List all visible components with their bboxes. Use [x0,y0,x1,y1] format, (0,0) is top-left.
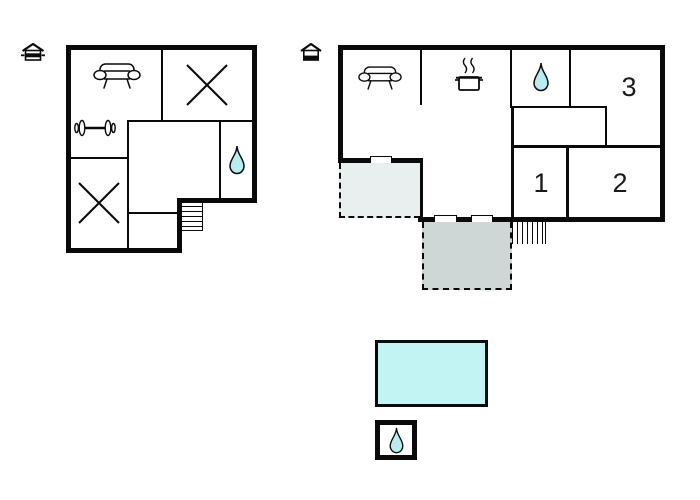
wall [566,148,569,217]
room-3-label: 3 [615,72,643,102]
wall [127,120,252,122]
wall [510,106,607,108]
wall [127,120,129,248]
wall [252,45,257,203]
wall [338,45,665,50]
water-drop-icon [228,145,246,175]
room-x-icon [77,181,121,225]
wall [66,45,71,253]
room-2-label: 2 [606,168,634,198]
wall [71,157,127,159]
wall [129,212,177,214]
water-drop-icon [388,427,405,454]
water-drop-box [375,420,417,460]
wall [510,50,512,106]
wall [605,108,607,145]
wall [511,145,660,148]
water-drop-icon [532,62,550,92]
room-x-icon [185,63,229,107]
house-lower-level-icon [21,43,45,63]
wall [569,50,571,107]
pool [375,340,488,407]
terrace-lower [422,222,512,290]
wall [161,50,163,121]
wall [66,248,182,253]
sofa-icon [358,64,402,92]
wall [219,122,221,198]
wall [338,45,343,163]
cooking-pot-icon [452,57,486,93]
stairs-icon [182,201,203,231]
terrace-upper [339,163,420,218]
stairs-icon [512,222,546,244]
sofa-icon [93,62,141,90]
house-upper-level-icon [300,43,322,63]
room-1-label: 1 [527,168,555,198]
wall [660,45,665,222]
wall [511,106,514,217]
floor-plan-canvas: 3 1 2 [0,0,700,500]
wall [420,50,422,105]
dumbbell-icon [73,119,117,137]
